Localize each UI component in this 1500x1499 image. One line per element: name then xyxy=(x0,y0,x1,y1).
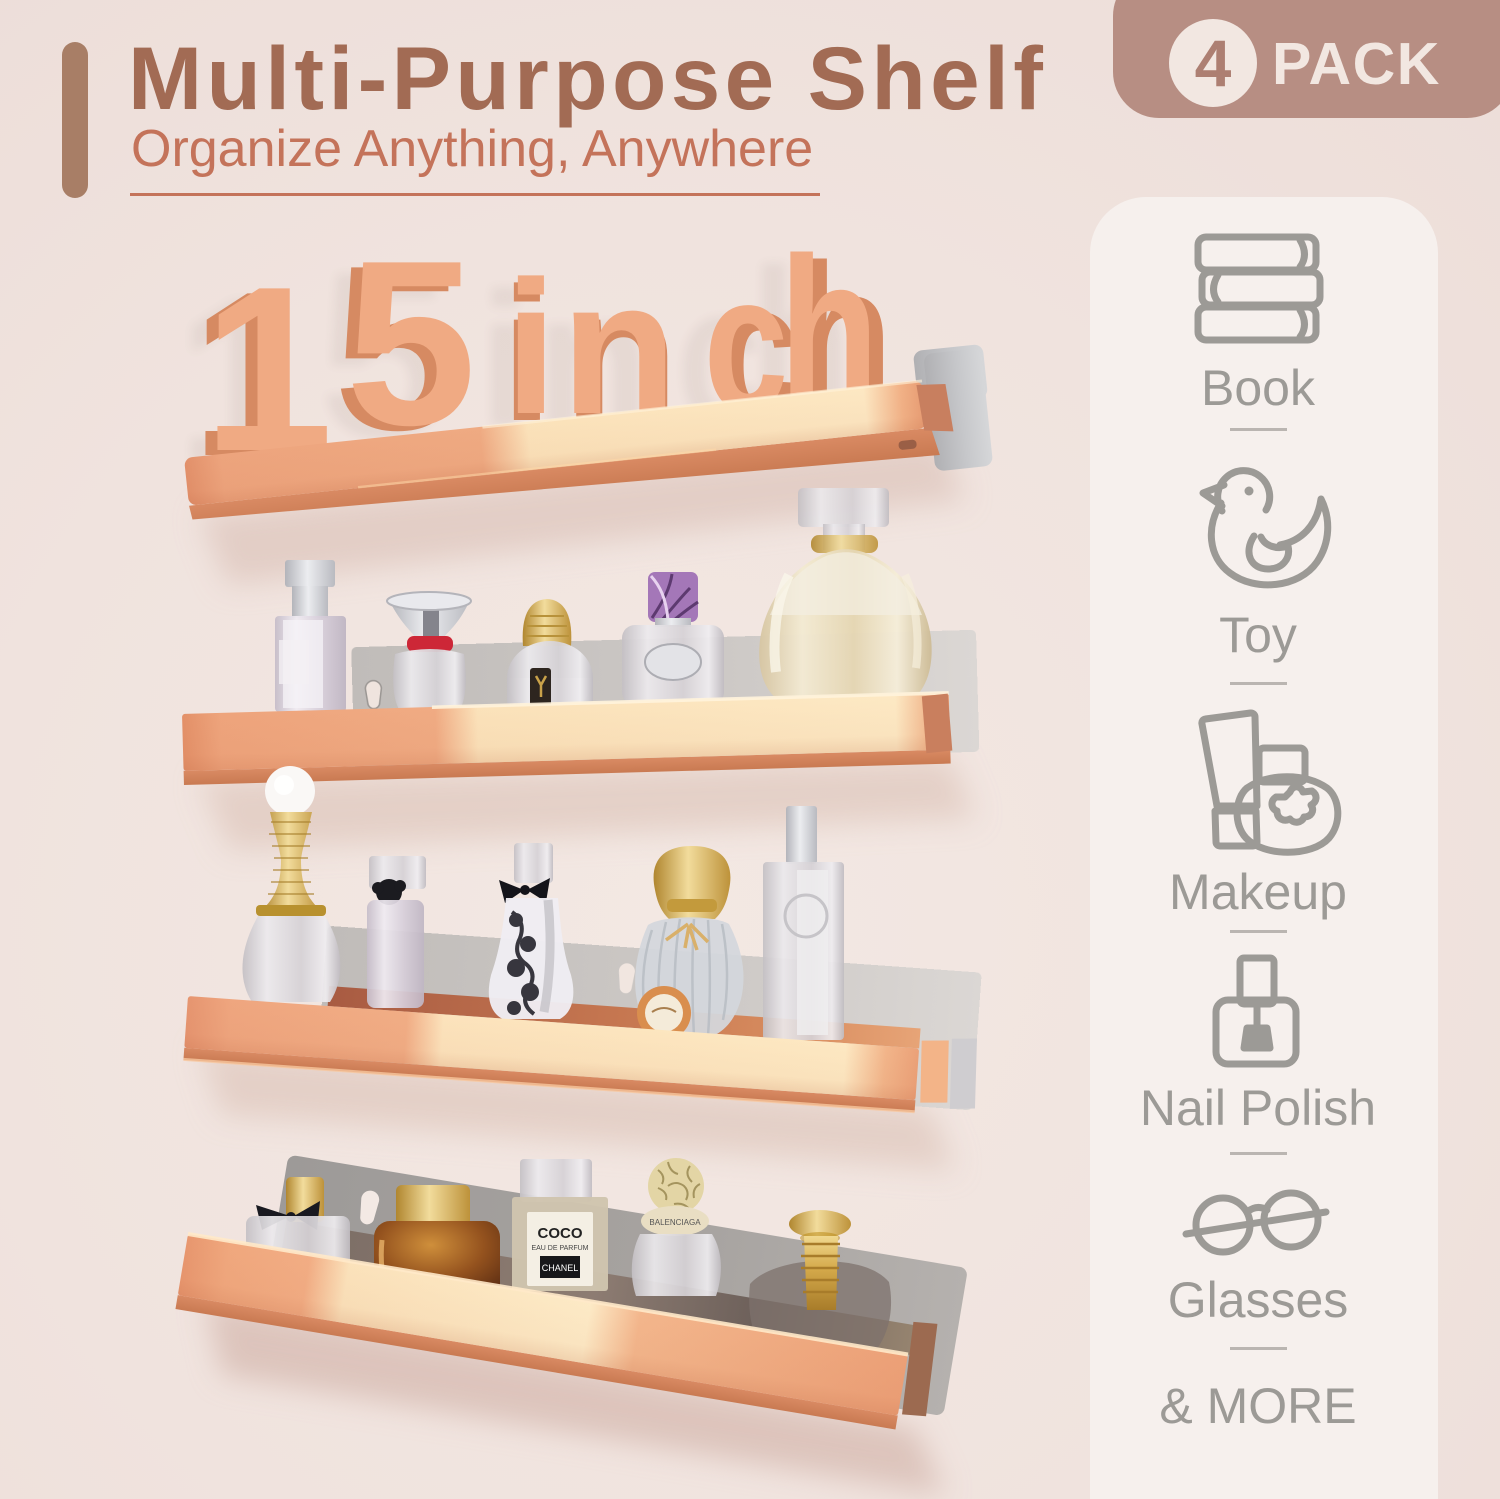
svg-text:Toy: Toy xyxy=(1219,607,1297,663)
svg-text:EAU DE PARFUM: EAU DE PARFUM xyxy=(531,1245,588,1252)
svg-text:Makeup: Makeup xyxy=(1169,864,1347,920)
svg-text:& MORE: & MORE xyxy=(1159,1378,1356,1434)
svg-text:Nail Polish: Nail Polish xyxy=(1140,1080,1376,1136)
svg-text:COCO: COCO xyxy=(538,1225,583,1242)
svg-text:Glasses: Glasses xyxy=(1168,1272,1349,1328)
svg-text:CHANEL: CHANEL xyxy=(542,1263,579,1273)
svg-text:Organize Anything, Anywhere: Organize Anything, Anywhere xyxy=(131,120,813,178)
svg-text:Book: Book xyxy=(1201,360,1316,416)
svg-text:Multi-Purpose Shelf: Multi-Purpose Shelf xyxy=(128,28,1047,128)
svg-text:BALENCIAGA: BALENCIAGA xyxy=(649,1218,701,1227)
svg-text:PACK: PACK xyxy=(1272,31,1441,97)
svg-text:4: 4 xyxy=(1195,26,1232,100)
